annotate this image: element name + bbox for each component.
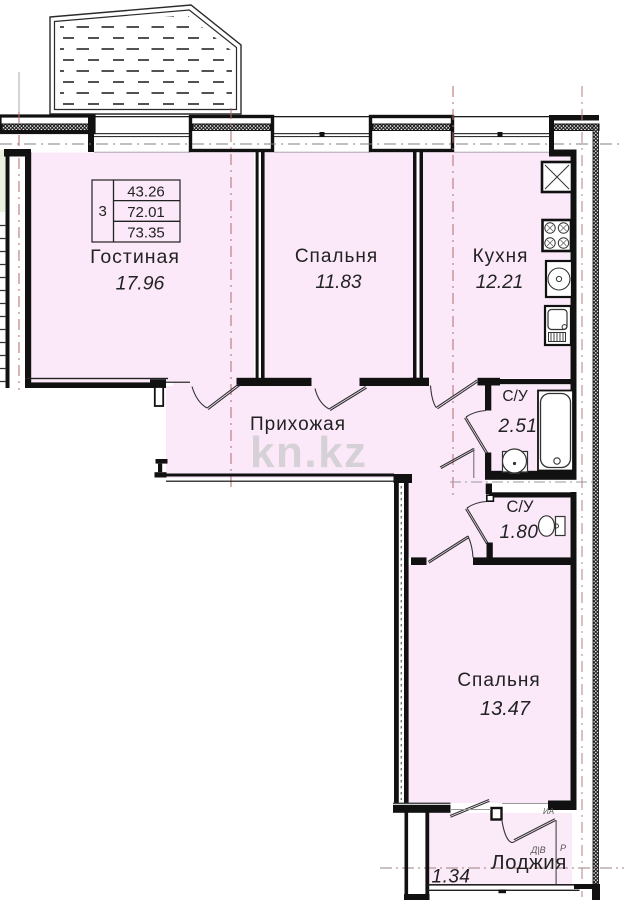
svg-text:43.26: 43.26 (127, 184, 165, 201)
svg-text:72.01: 72.01 (127, 204, 165, 221)
svg-text:Гостиная: Гостиная (90, 246, 180, 268)
svg-text:ИА: ИА (543, 807, 554, 816)
svg-text:Лоджия: Лоджия (491, 851, 567, 874)
svg-text:Кухня: Кухня (473, 246, 529, 267)
svg-text:12.21: 12.21 (476, 272, 524, 293)
svg-text:17.96: 17.96 (116, 273, 165, 295)
svg-text:73.35: 73.35 (127, 225, 165, 242)
svg-text:Спальня: Спальня (457, 670, 540, 691)
svg-text:11.83: 11.83 (315, 272, 362, 293)
svg-text:13.47: 13.47 (480, 698, 531, 720)
svg-text:kn.kz: kn.kz (250, 428, 368, 477)
svg-text:1.34: 1.34 (432, 867, 471, 888)
svg-text:2.51: 2.51 (498, 416, 538, 437)
svg-text:С/У: С/У (502, 388, 528, 405)
svg-text:3: 3 (99, 203, 107, 220)
svg-text:С/У: С/У (507, 498, 535, 516)
svg-text:1.80: 1.80 (500, 522, 539, 543)
svg-text:Спальня: Спальня (295, 246, 378, 267)
